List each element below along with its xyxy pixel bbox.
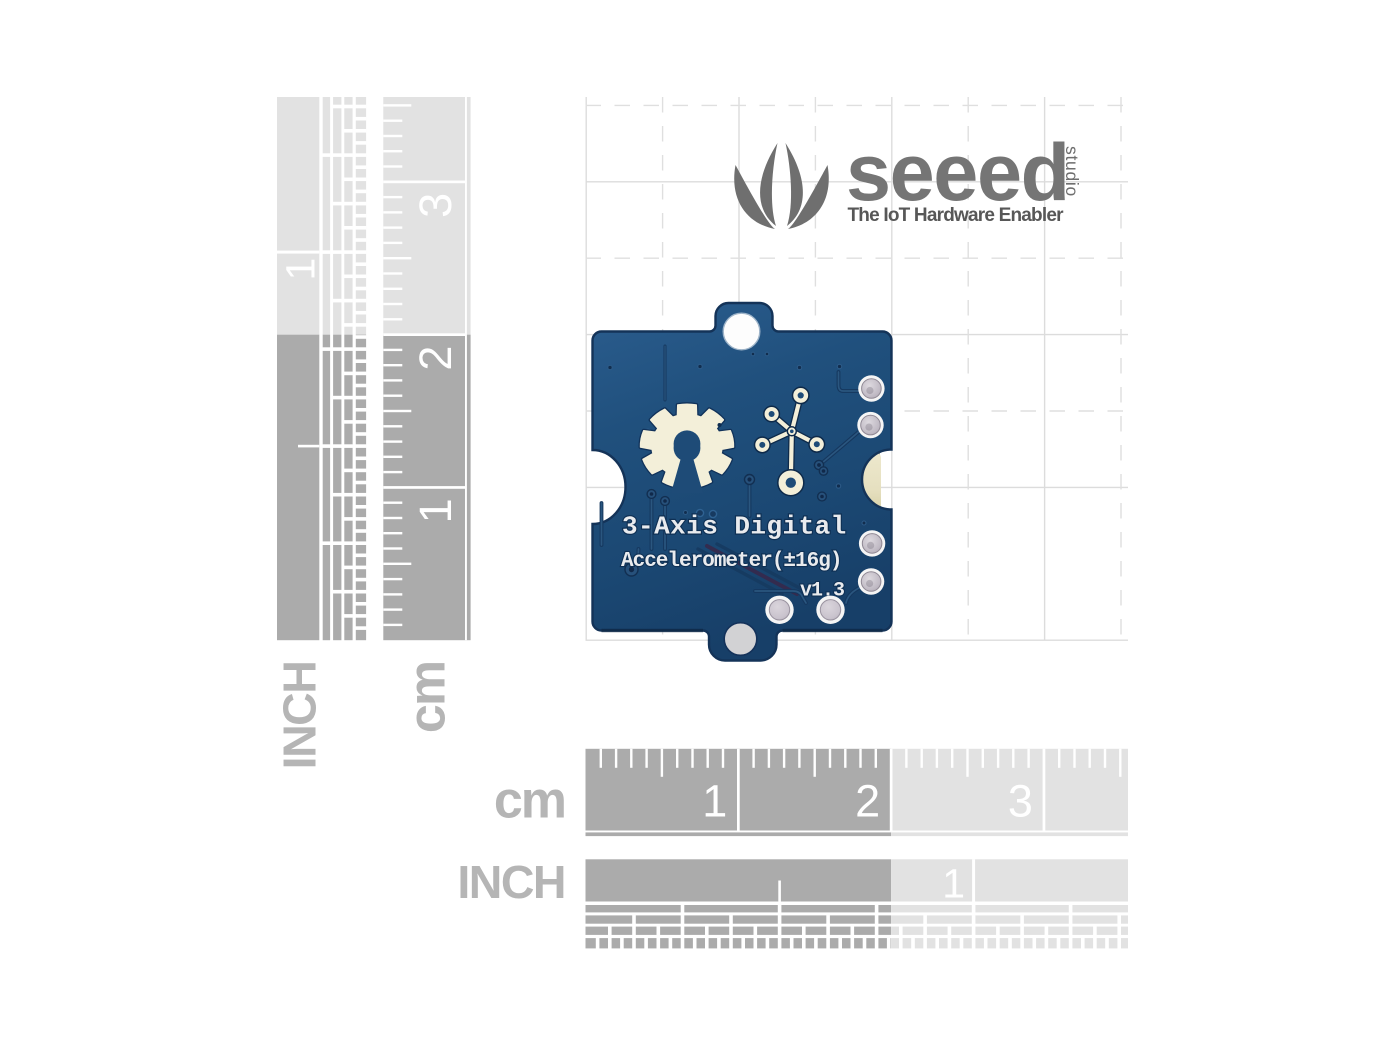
svg-text:2: 2 [410,346,461,371]
svg-text:3: 3 [410,193,461,218]
svg-text:studio: studio [1062,146,1082,197]
svg-text:cm: cm [399,662,457,733]
svg-text:1: 1 [702,776,727,827]
svg-text:1: 1 [278,258,324,281]
svg-text:3: 3 [1008,776,1033,827]
svg-text:cm: cm [494,772,565,830]
svg-text:2: 2 [855,776,880,827]
svg-text:INCH: INCH [457,856,565,908]
svg-text:1: 1 [942,861,965,907]
svg-text:1: 1 [410,498,461,523]
svg-text:The IoT Hardware Enabler: The IoT Hardware Enabler [848,205,1065,226]
svg-text:INCH: INCH [274,662,326,770]
svg-text:Accelerometer(±16g): Accelerometer(±16g) [621,550,841,573]
svg-text:3-Axis Digital: 3-Axis Digital [622,512,847,542]
